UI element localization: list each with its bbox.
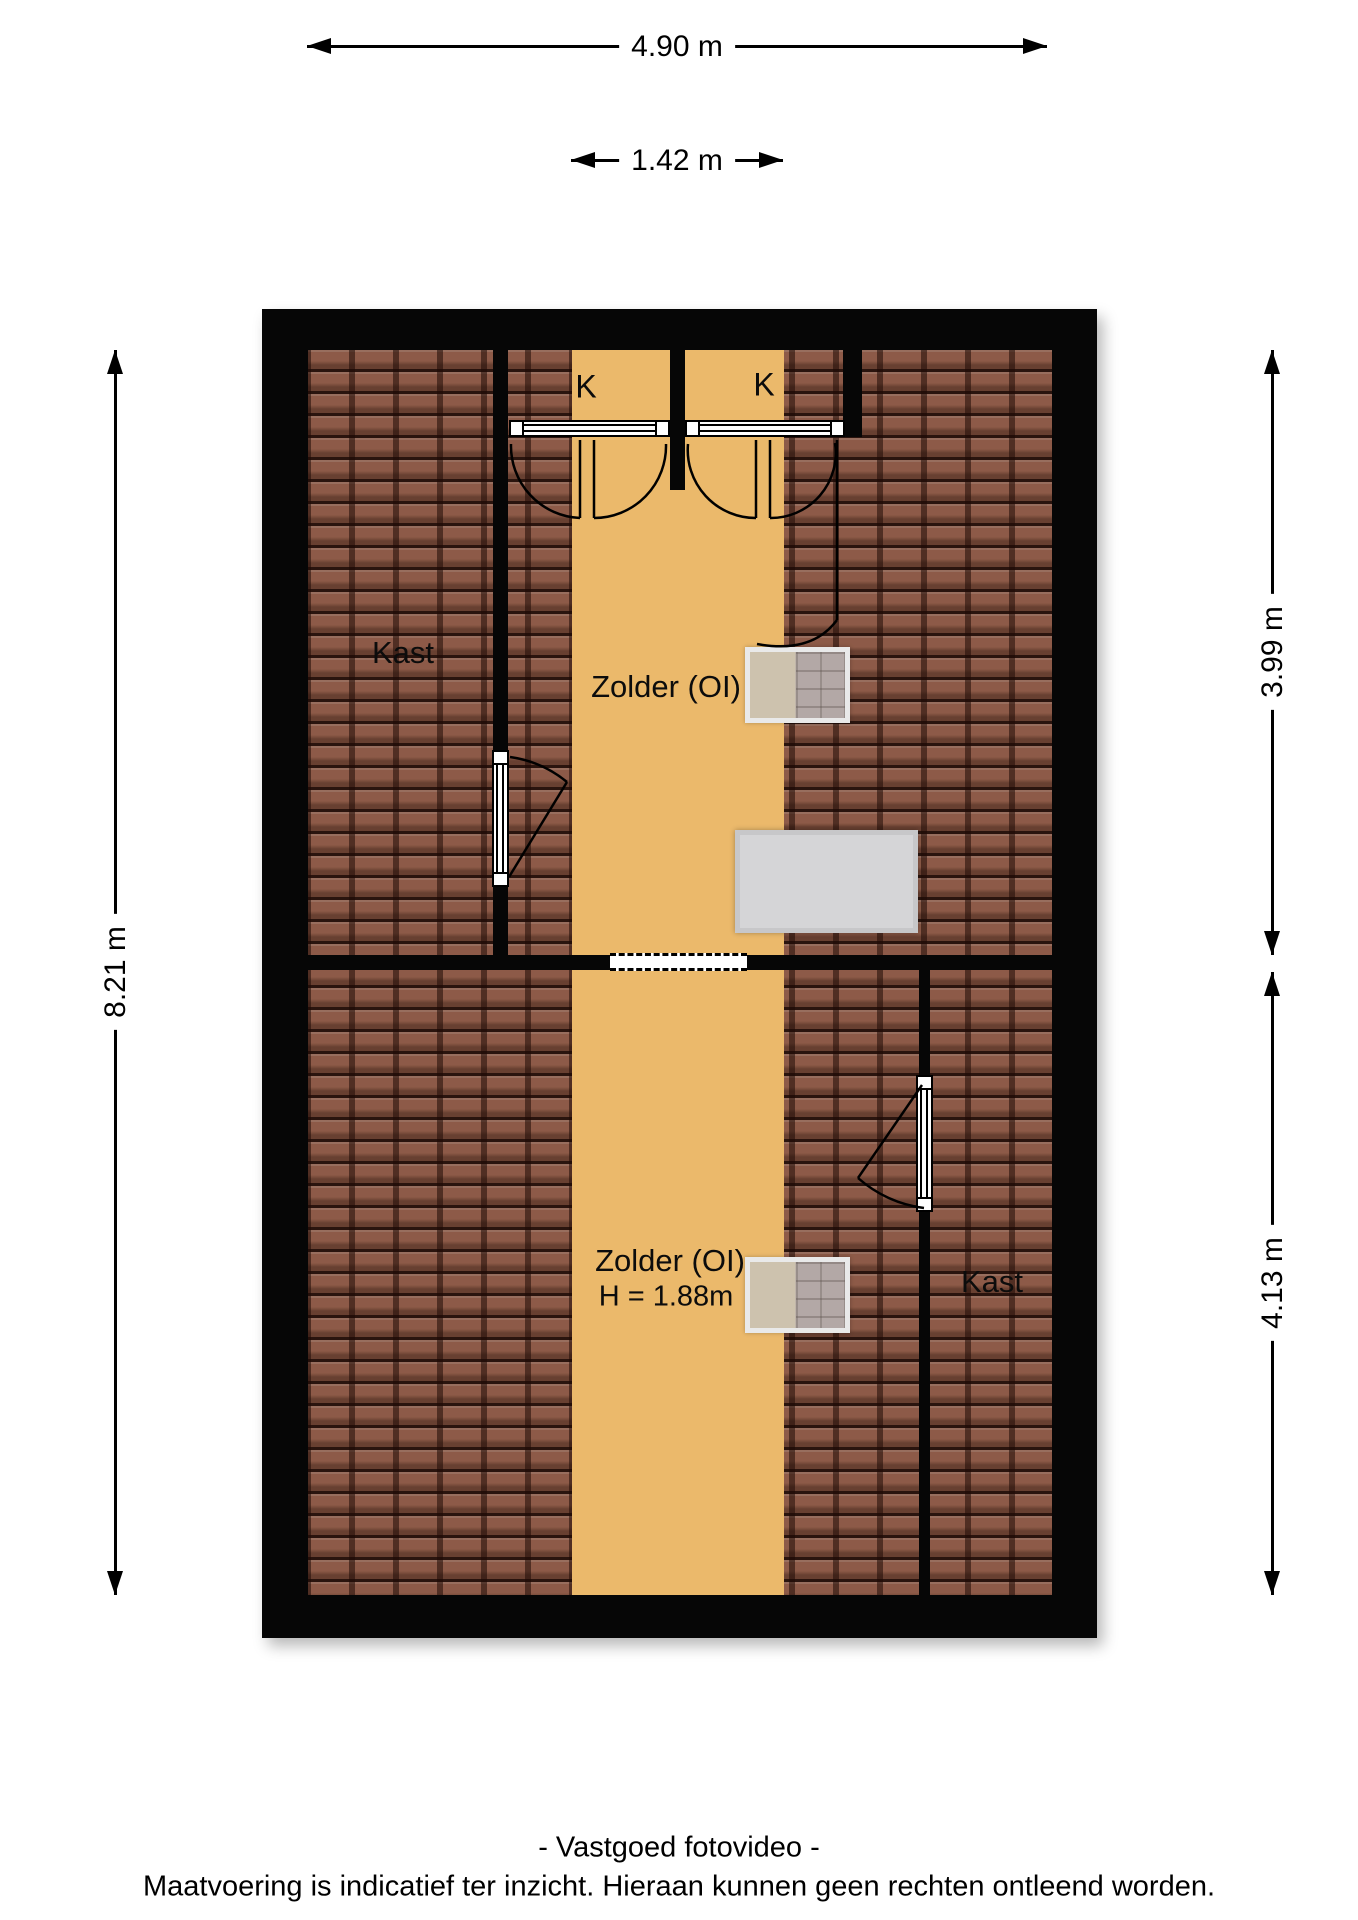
window-k2-end-right <box>830 420 845 437</box>
room-label-zolder-lower-height: H = 1.88m <box>599 1281 734 1314</box>
door-lower-right-end-bottom <box>916 1197 933 1212</box>
room-label-k1: K <box>575 369 596 406</box>
room-label-kast-lower: Kast <box>961 1264 1023 1300</box>
footer-brand: - Vastgoed fotovideo - <box>0 1832 1358 1865</box>
attic-interior-rooftiles: K K Kast Zolder (OI) Zolder (OI) H = 1.8… <box>308 350 1052 1595</box>
wall-upper-left-bottom <box>493 887 508 955</box>
door-lower-right-frame <box>916 1075 933 1212</box>
stair-opening-gray-box <box>735 830 918 933</box>
building-outline: K K Kast Zolder (OI) Zolder (OI) H = 1.8… <box>262 309 1097 1638</box>
dimension-label-total-width: 4.90 m <box>619 28 735 66</box>
door-upper-left-end-top <box>492 750 509 765</box>
window-k1 <box>509 420 670 437</box>
window-k2-end-left <box>685 420 700 437</box>
room-label-kast-upper: Kast <box>372 635 434 671</box>
roof-window-upper-icon <box>745 647 850 723</box>
divider-opening-hatch <box>610 953 747 971</box>
dimension-label-corridor-width: 1.42 m <box>619 142 735 180</box>
dimension-label-lower-height: 4.13 m <box>1254 1225 1292 1341</box>
wall-lower-kast-bottom <box>919 1212 930 1595</box>
wall-k2-right <box>843 350 862 437</box>
wall-lower-kast-top <box>919 970 930 1075</box>
door-upper-left-end-bottom <box>492 872 509 887</box>
roof-window-lower-icon <box>745 1257 850 1333</box>
wall-between-k-closets <box>670 350 685 490</box>
window-k1-end-right <box>655 420 670 437</box>
footer-disclaimer: Maatvoering is indicatief ter inzicht. H… <box>0 1871 1358 1904</box>
door-lower-right-end-top <box>916 1075 933 1090</box>
room-label-zolder-lower: Zolder (OI) <box>595 1243 745 1279</box>
dimension-label-upper-height: 3.99 m <box>1254 594 1292 710</box>
room-label-zolder-upper: Zolder (OI) <box>591 669 741 705</box>
wall-upper-left-top <box>493 350 508 750</box>
window-k2 <box>685 420 845 437</box>
door-upper-left-frame <box>492 750 509 887</box>
room-label-k2: K <box>753 367 774 404</box>
floorplan-canvas: K K Kast Zolder (OI) Zolder (OI) H = 1.8… <box>0 0 1358 1920</box>
attic-floor-corridor <box>572 350 784 1595</box>
window-k1-end-left <box>509 420 524 437</box>
dimension-label-total-height: 8.21 m <box>97 914 135 1030</box>
